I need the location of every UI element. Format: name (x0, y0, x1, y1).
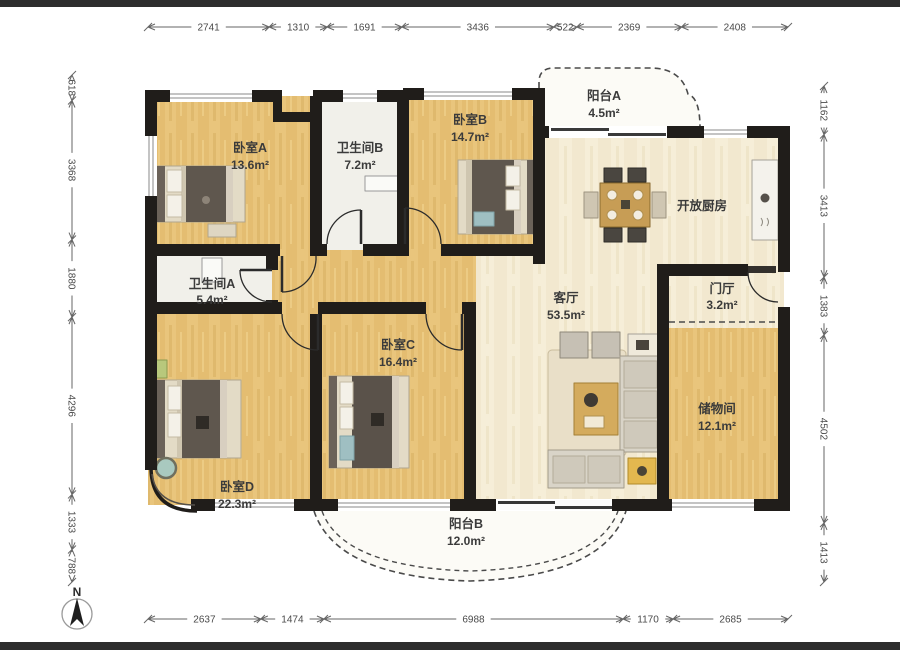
dimension-value: 1383 (818, 295, 829, 318)
armchair (560, 332, 588, 358)
dimension-value: 788 (66, 557, 77, 574)
north-compass: N (62, 585, 92, 629)
room-area: 22.3m² (218, 497, 256, 511)
room-area: 3.2m² (706, 298, 737, 312)
living-room-set (548, 332, 662, 488)
window-kitchen-top (704, 126, 747, 138)
dimension-value: 3368 (66, 159, 77, 182)
room-name: 阳台B (449, 516, 483, 531)
dimension-value: 2637 (193, 615, 216, 626)
dimension-value: 6988 (462, 615, 485, 626)
room-name: 阳台A (587, 88, 621, 103)
kitchen-label: 开放厨房 (677, 198, 727, 213)
room-name: 储物间 (697, 401, 736, 416)
room-area: 14.7m² (451, 130, 489, 144)
kitchen-counter (752, 160, 778, 240)
dimension-value: 1170 (637, 615, 659, 626)
bathroom-b-sink (365, 176, 398, 191)
dimension-value: 1310 (287, 23, 310, 34)
corridor-floor (272, 250, 476, 308)
balcony-a: 阳台A 4.5m² (539, 68, 700, 128)
room-name: 卧室B (453, 112, 487, 127)
room-area: 12.1m² (698, 419, 736, 433)
dimension-value: 1162 (818, 100, 829, 122)
north-arrow-icon (70, 598, 84, 626)
room-name: 卧室A (233, 140, 267, 155)
dimension-value: 4296 (66, 395, 77, 418)
floor-plan-page: 阳台A 4.5m² 阳台B 12.0m² (0, 0, 900, 650)
north-label: N (73, 585, 82, 599)
room-area: 7.2m² (344, 158, 375, 172)
room-area: 13.6m² (231, 158, 269, 172)
top-letterbox-bar (0, 0, 900, 7)
room-name: 门厅 (709, 281, 735, 296)
dimension-value: 2741 (197, 23, 220, 34)
living-room-slider (496, 499, 612, 511)
bed-d (157, 380, 241, 458)
room-area: 16.4m² (379, 355, 417, 369)
room-area: 12.0m² (447, 534, 485, 548)
dimension-value: 1413 (818, 541, 829, 564)
room-area: 5.4m² (196, 293, 227, 307)
room-name: 卧室D (220, 479, 254, 494)
dimension-value: 1691 (353, 23, 376, 34)
nightstand (208, 224, 236, 237)
room-name: 开放厨房 (677, 198, 727, 213)
window-bathroom-b-top (343, 90, 377, 102)
bottom-letterbox-bar (0, 642, 900, 650)
bed-b (458, 160, 535, 234)
dimension-value: 1880 (66, 267, 77, 290)
dimension-strip-bottom: 26371474698811702685 (193, 615, 742, 626)
storage-floor (663, 328, 784, 505)
room-name: 卫生间A (189, 276, 236, 291)
window-bedroom-b-top (424, 88, 512, 100)
dimension-value: 2408 (724, 23, 747, 34)
dimension-value: 2369 (618, 23, 641, 34)
room-name: 卫生间B (337, 140, 384, 155)
window-bedroom-a-left (145, 136, 157, 196)
room-name: 客厅 (552, 290, 579, 305)
window-storage-bottom (672, 499, 754, 511)
bed-c (329, 376, 409, 468)
dimension-value: 4502 (818, 418, 829, 441)
bathroom-b-floor (316, 96, 403, 250)
window-bedroom-a-top (170, 90, 252, 102)
dimension-value: 3436 (467, 23, 490, 34)
armchair (592, 332, 620, 358)
dimension-value: 1474 (281, 615, 304, 626)
dimension-value: 1333 (66, 511, 77, 534)
dimension-value: 2685 (719, 615, 742, 626)
dimension-value: 3413 (818, 195, 829, 218)
balcony-a-slider (549, 126, 667, 138)
room-area: 4.5m² (588, 106, 619, 120)
floor-plan-canvas: 阳台A 4.5m² 阳台B 12.0m² (0, 0, 900, 650)
washing-machine (156, 458, 176, 478)
dimension-strip-top: 274113101691343652223692408 (197, 23, 746, 34)
balcony-b: 阳台B 12.0m² (314, 511, 626, 581)
room-name: 卧室C (381, 337, 415, 352)
room-area: 53.5m² (547, 308, 585, 322)
window-bedroom-c-bottom (338, 499, 450, 511)
